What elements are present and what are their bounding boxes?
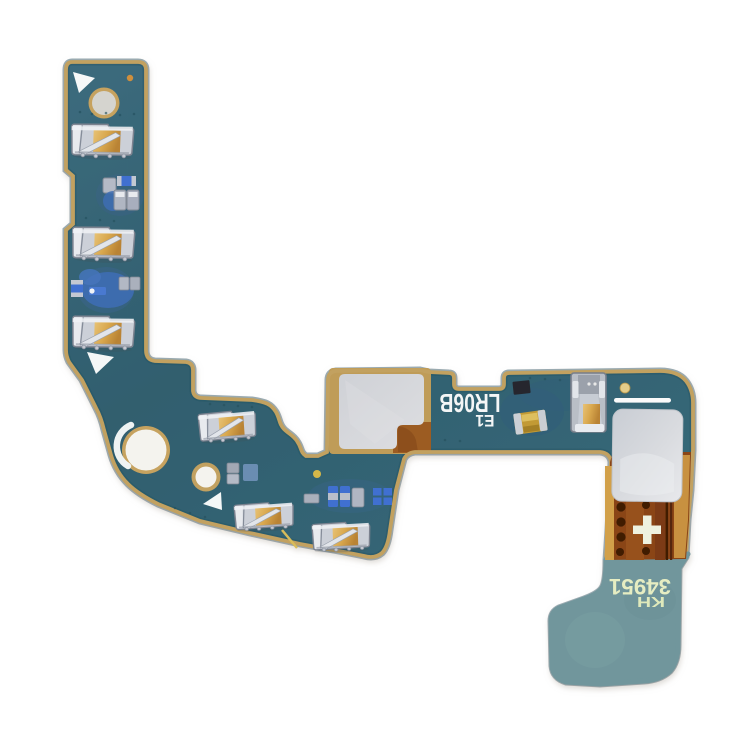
svg-text:E1: E1 bbox=[476, 411, 495, 430]
svg-text:KH: KH bbox=[637, 593, 665, 610]
